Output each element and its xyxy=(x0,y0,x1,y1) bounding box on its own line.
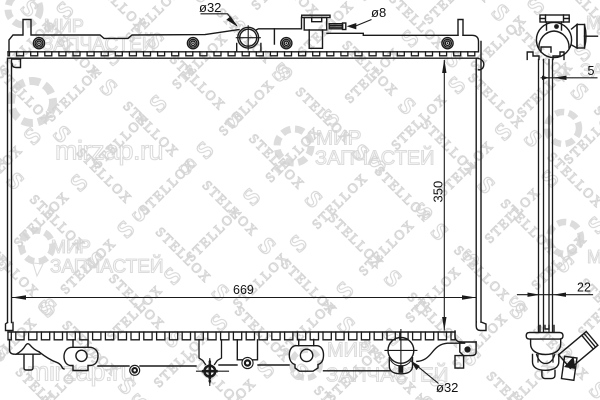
svg-text:5: 5 xyxy=(588,64,595,78)
svg-text:669: 669 xyxy=(233,283,254,297)
svg-text:22: 22 xyxy=(577,281,591,295)
svg-text:ø8: ø8 xyxy=(371,5,386,20)
svg-text:ø32: ø32 xyxy=(199,0,221,15)
svg-text:350: 350 xyxy=(431,181,446,203)
svg-text:ø32: ø32 xyxy=(436,380,458,395)
